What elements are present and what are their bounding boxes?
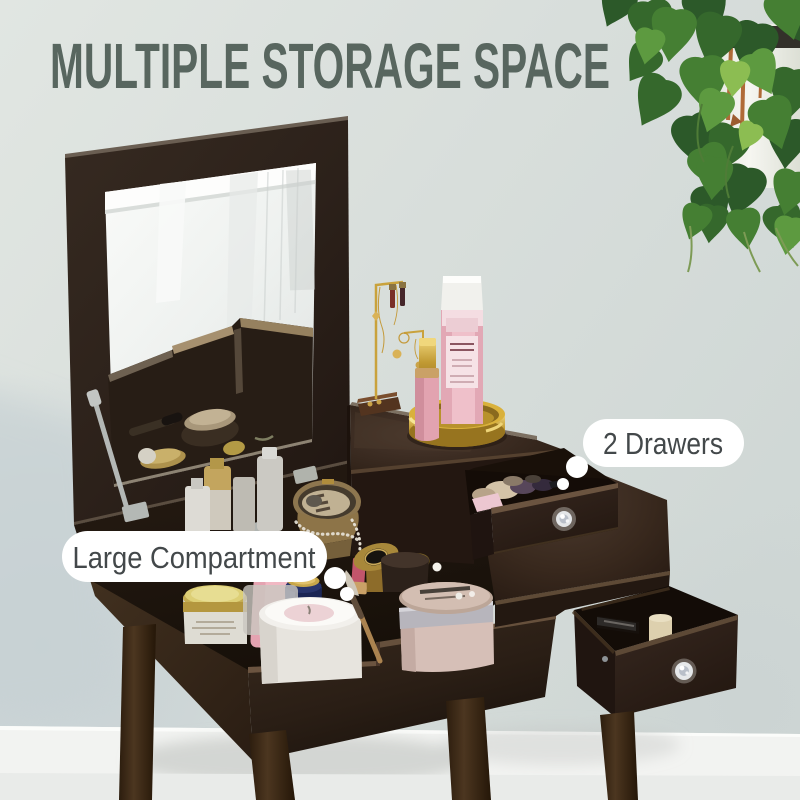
svg-text:2 Drawers: 2 Drawers [603,426,723,461]
svg-text:MULTIPLE STORAGE SPACE: MULTIPLE STORAGE SPACE [50,30,610,102]
svg-text:Large Compartment: Large Compartment [73,540,316,575]
